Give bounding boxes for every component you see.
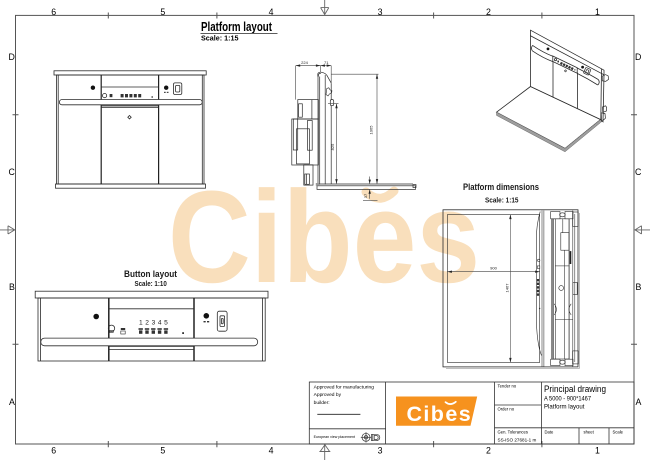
svg-text:sheet: sheet xyxy=(584,430,595,435)
svg-text:A 5000 - 900*1467: A 5000 - 900*1467 xyxy=(544,395,591,402)
svg-text:Cibes: Cibes xyxy=(168,165,480,311)
svg-text:Scale: Scale xyxy=(613,430,624,435)
svg-text:1: 1 xyxy=(595,446,600,456)
svg-text:3: 3 xyxy=(152,320,156,327)
svg-text:1: 1 xyxy=(139,320,143,327)
svg-text:Platform layout: Platform layout xyxy=(544,404,585,411)
svg-text:Platform dimensions: Platform dimensions xyxy=(463,182,539,193)
svg-text:1467: 1467 xyxy=(505,283,510,293)
svg-text:4: 4 xyxy=(158,320,162,327)
svg-text:Gen. Tolerances: Gen. Tolerances xyxy=(498,430,528,435)
svg-text:2: 2 xyxy=(486,446,491,456)
svg-text:A: A xyxy=(9,397,15,407)
svg-text:builder:: builder: xyxy=(314,400,330,406)
svg-text:Scale: 1:10: Scale: 1:10 xyxy=(135,279,167,288)
svg-text:Approved by: Approved by xyxy=(314,392,342,398)
svg-text:B: B xyxy=(9,282,15,292)
svg-text:European view placement: European view placement xyxy=(314,435,355,439)
svg-text:Order no: Order no xyxy=(498,406,515,411)
svg-text:3: 3 xyxy=(378,446,383,456)
svg-text:4: 4 xyxy=(269,446,274,456)
svg-text:2: 2 xyxy=(145,320,149,327)
svg-text:1065: 1065 xyxy=(369,125,374,135)
svg-text:5: 5 xyxy=(160,446,165,456)
svg-text:Tender no: Tender no xyxy=(498,383,517,388)
svg-text:Approved for manufacturing: Approved for manufacturing xyxy=(314,384,375,390)
svg-text:Cibes: Cibes xyxy=(407,402,473,426)
svg-text:SS-ISO 27681-1 m: SS-ISO 27681-1 m xyxy=(498,438,537,443)
svg-text:A: A xyxy=(636,397,642,407)
svg-text:6: 6 xyxy=(51,446,56,456)
svg-text:71: 71 xyxy=(324,60,329,65)
svg-text:C: C xyxy=(635,167,642,177)
svg-text:2: 2 xyxy=(486,7,491,17)
svg-text:37: 37 xyxy=(363,193,368,198)
svg-text:6: 6 xyxy=(51,7,56,17)
svg-text:Date: Date xyxy=(545,430,555,435)
svg-text:D: D xyxy=(9,52,15,62)
svg-text:3: 3 xyxy=(378,7,383,17)
svg-text:1: 1 xyxy=(595,7,600,17)
svg-text:825: 825 xyxy=(330,143,335,150)
svg-text:B: B xyxy=(636,282,642,292)
svg-text:4: 4 xyxy=(269,7,274,17)
svg-text:5: 5 xyxy=(160,7,165,17)
svg-text:Principal drawing: Principal drawing xyxy=(544,384,606,395)
svg-text:900: 900 xyxy=(490,266,497,271)
svg-text:5: 5 xyxy=(164,320,168,327)
svg-text:Scale: 1:15: Scale: 1:15 xyxy=(201,34,239,43)
svg-text:Platform layout: Platform layout xyxy=(201,19,273,34)
svg-text:D: D xyxy=(635,52,641,62)
svg-text:224: 224 xyxy=(301,60,308,65)
svg-text:Scale: 1:15: Scale: 1:15 xyxy=(485,196,519,205)
svg-text:C: C xyxy=(9,167,16,177)
